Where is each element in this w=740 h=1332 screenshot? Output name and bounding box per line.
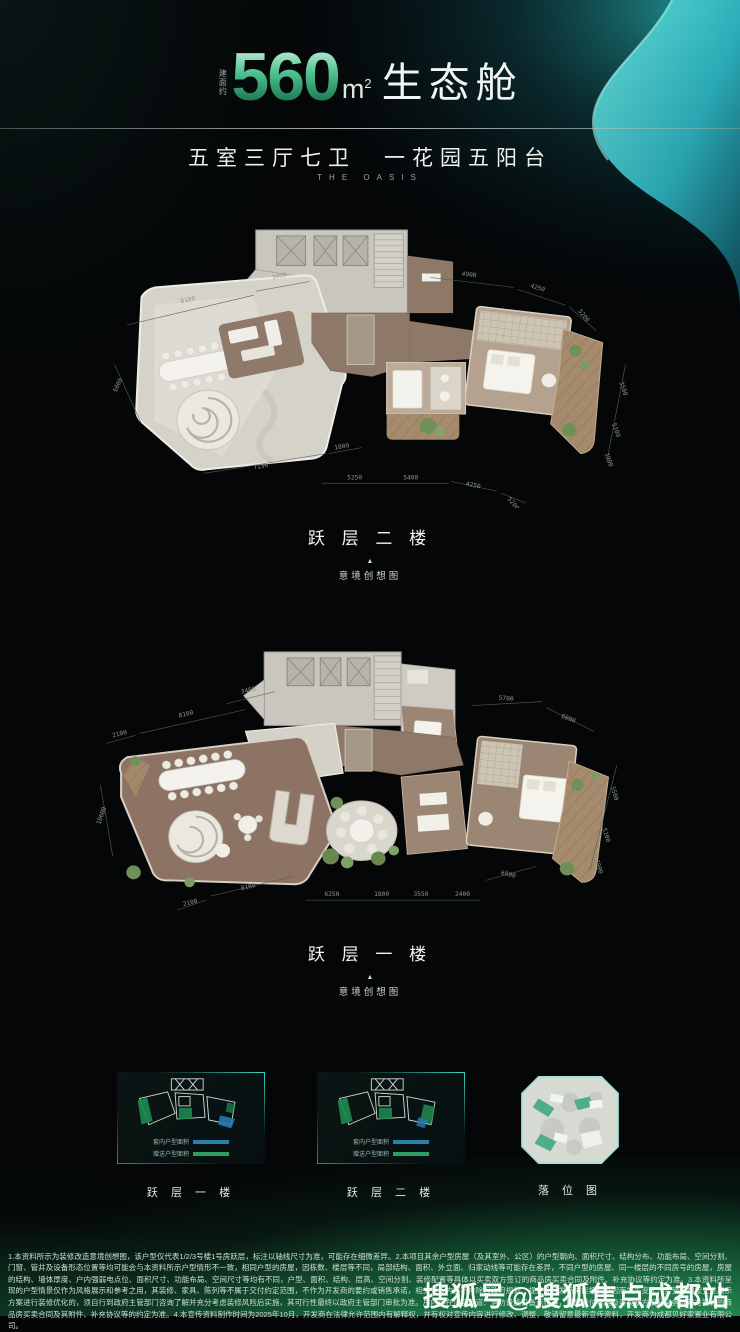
dimension-label: 7150: [253, 462, 269, 471]
thumbnail-level2: 套内户型面积 赠送户型面积 跃 层 二 楼: [317, 1072, 465, 1200]
legend-label: 赠送户型面积: [353, 1149, 389, 1158]
dimension-label: 5500: [609, 786, 620, 802]
thumbnail-row: 套内户型面积 赠送户型面积 跃 层 一 楼: [0, 1072, 740, 1200]
plant: [569, 345, 581, 357]
thumbnail-label-level2: 跃 层 二 楼: [347, 1184, 435, 1200]
study-rooms: [401, 771, 467, 854]
lower-floor-plan-section: 2100 8100 3400 5700 6000 10600 2100 8100…: [0, 646, 740, 998]
spa-spiral: [177, 390, 239, 449]
upper-plan-caption: ▲ 意境创想图: [339, 558, 402, 582]
legend-row: 赠送户型面积: [353, 1149, 429, 1158]
dimension-label: 5100: [600, 827, 611, 843]
unit-exponent: 2: [364, 76, 371, 91]
mini-floor-plan-outline: [126, 1076, 256, 1134]
layout-subtitle: 五室三厅七卫 一花园五阳台: [0, 142, 740, 172]
legend-bar-blue: [193, 1140, 229, 1144]
upper-floor-plan: 8100 3400 4900 4250 5200 6000 7150 1800 …: [100, 226, 640, 508]
dimension-label: 2100: [182, 898, 199, 908]
legend-bar-blue: [393, 1140, 429, 1144]
triangle-marker-icon: ▲: [367, 974, 374, 981]
dimension-label: 5700: [498, 695, 514, 703]
area-unit: m2: [342, 74, 372, 105]
balcony-deck: [387, 414, 460, 440]
dimension-label: 5400: [403, 474, 418, 481]
legend-bar-green: [193, 1152, 229, 1156]
legend-label: 套内户型面积: [153, 1137, 189, 1146]
dimension-label: 4250: [465, 480, 482, 490]
dimension-label: 4250: [529, 283, 546, 294]
dimension-label: 5200: [576, 308, 591, 324]
dimension-label: 3500: [617, 381, 629, 397]
marble-feature: [347, 315, 374, 364]
elevator-core: [243, 652, 401, 725]
dimension-label: 3550: [414, 891, 429, 898]
header-divider-line: [0, 128, 740, 129]
staircase: [374, 234, 403, 287]
thumbnail-panel: 套内户型面积 赠送户型面积: [117, 1072, 265, 1164]
legend-label: 套内户型面积: [353, 1137, 389, 1146]
triangle-marker-icon: ▲: [367, 558, 374, 565]
bathroom: [430, 367, 461, 411]
title-suffix: 生态舱: [382, 63, 523, 106]
dimension-label: 6250: [324, 891, 339, 898]
plant: [571, 779, 583, 791]
area-prefix-vertical-text: 建面约: [217, 69, 228, 96]
dimension-label: 8100: [240, 882, 257, 892]
round-dining-table: [349, 819, 374, 843]
garden-courtyard: [322, 797, 399, 868]
plant: [322, 849, 339, 865]
plant: [434, 427, 444, 437]
plant: [130, 756, 140, 766]
thumbnail-level1: 套内户型面积 赠送户型面积 跃 层 一 楼: [117, 1072, 265, 1200]
dimension-label: 2100: [112, 729, 129, 739]
secondary-bedroom-suite: [387, 363, 466, 414]
sohu-watermark: 搜狐号@搜狐焦点成都站: [423, 1275, 730, 1314]
dimension-label: 1800: [374, 891, 389, 898]
plant: [184, 877, 194, 887]
area-legend: 套内户型面积 赠送户型面积: [353, 1137, 429, 1158]
area-legend: 套内户型面积 赠送户型面积: [153, 1137, 229, 1158]
plant: [331, 797, 343, 809]
legend-label: 赠送户型面积: [153, 1149, 189, 1158]
dimension-label: 6000: [112, 377, 125, 393]
thumbnail-panel: 套内户型面积 赠送户型面积: [317, 1072, 465, 1164]
dimension-label: 4900: [461, 271, 477, 280]
plant: [371, 852, 386, 866]
unit-m: m: [342, 74, 365, 104]
upper-floor-plan-section: 8100 3400 4900 4250 5200 6000 7150 1800 …: [0, 226, 740, 582]
plant: [389, 846, 399, 856]
legend-row: 赠送户型面积: [153, 1149, 229, 1158]
page-title: 建面约 560 m2 生态舱: [0, 50, 740, 106]
dimension-label: 6000: [500, 870, 517, 880]
plant: [126, 865, 141, 879]
legend-row: 套内户型面积: [353, 1137, 429, 1146]
dimension-label: 10600: [96, 806, 109, 825]
dimension-label: 8100: [178, 709, 195, 719]
left-wing-terrace: [120, 737, 336, 887]
dimension-label: 6000: [560, 713, 577, 725]
plant: [591, 772, 599, 780]
staircase: [374, 656, 401, 720]
bed: [393, 370, 422, 408]
mini-floor-plan-outline: [326, 1076, 456, 1134]
plant: [560, 861, 575, 875]
dimension-label: 5200: [505, 496, 520, 508]
thumbnail-site-map: 落 位 图: [517, 1072, 623, 1198]
dimension-label: 5250: [347, 474, 362, 481]
area-number: 560: [231, 50, 338, 106]
plant: [562, 423, 577, 437]
caption-text: 意境创想图: [339, 984, 402, 998]
plant: [420, 418, 437, 434]
lower-floor-plan-label: 跃 层 一 楼: [308, 940, 432, 965]
wardrobe: [477, 740, 523, 788]
dimension-label: 2400: [455, 891, 470, 898]
caption-text: 意境创想图: [339, 568, 402, 582]
legend-row: 套内户型面积: [153, 1137, 229, 1146]
plant: [580, 361, 589, 370]
lower-plan-caption: ▲ 意境创想图: [339, 974, 402, 998]
upper-floor-plan-label: 跃 层 二 楼: [308, 524, 432, 549]
site-map-graphic: [517, 1072, 623, 1168]
lower-floor-plan: 2100 8100 3400 5700 6000 10600 2100 8100…: [90, 646, 650, 924]
thumbnail-label-level1: 跃 层 一 楼: [147, 1184, 235, 1200]
left-wing-lounge: [136, 275, 345, 469]
marble-feature: [345, 729, 372, 771]
legend-bar-green: [393, 1152, 429, 1156]
subtitle-english: THE OASIS: [0, 173, 740, 182]
thumbnail-label-sitemap: 落 位 图: [538, 1182, 602, 1198]
plant: [341, 856, 353, 868]
dimension-label: 1900: [603, 452, 615, 468]
